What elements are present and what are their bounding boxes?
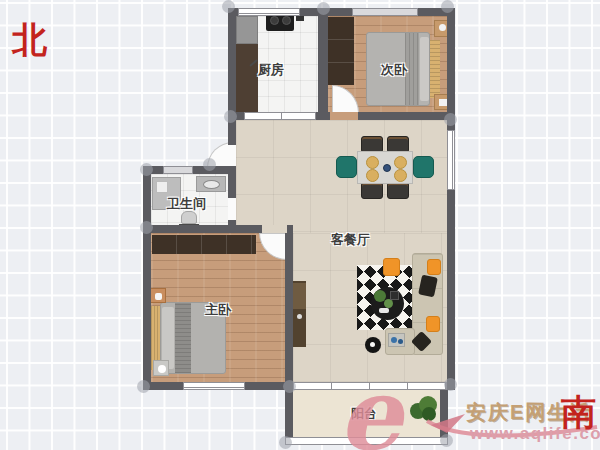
wall-left-upper <box>228 8 236 145</box>
doorway-second-bedroom <box>330 112 358 120</box>
room-label-master-bedroom: 主卧 <box>205 301 231 319</box>
watermark-logo: e <box>338 374 402 450</box>
corner-handle <box>140 221 153 234</box>
corner-handle <box>444 378 457 391</box>
floor-lamp <box>365 337 381 353</box>
book-icon <box>439 99 447 106</box>
plate-icon <box>394 156 407 169</box>
doorway-master <box>262 225 287 233</box>
corner-handle <box>224 110 237 123</box>
window-bedroom-top <box>352 8 418 16</box>
coffee-table <box>371 287 404 320</box>
tv-shelf <box>293 283 306 309</box>
dining-chair-teal <box>336 156 357 178</box>
sofa-pillow-orange <box>426 316 440 332</box>
room-label-living-dining: 客餐厅 <box>331 231 370 249</box>
wall-right <box>447 8 455 390</box>
wardrobe-master <box>152 235 256 254</box>
plant-icon <box>384 299 393 308</box>
plate-icon <box>366 156 379 169</box>
basin-icon <box>203 180 220 189</box>
plate-icon <box>366 169 379 182</box>
blanket <box>405 33 419 105</box>
compass-north: 北 <box>12 22 47 57</box>
sink <box>196 176 226 192</box>
corner-handle <box>203 158 216 171</box>
side-tray <box>388 333 405 347</box>
kitchen-counter-dark <box>236 44 258 112</box>
wall-master-right <box>285 225 293 390</box>
tray-icon <box>390 291 399 300</box>
window-living-right <box>447 130 455 190</box>
cup-icon <box>155 293 162 300</box>
lamp-icon <box>158 365 166 373</box>
wall-kitchen-divider <box>318 8 328 112</box>
window-kitchen-top <box>238 8 300 16</box>
corner-handle <box>317 2 330 15</box>
corner-handle <box>444 113 457 126</box>
dining-chair <box>387 182 409 199</box>
sofa-pillow-orange <box>427 259 441 275</box>
corner-handle <box>441 0 454 13</box>
corner-handle <box>137 380 150 393</box>
room-label-kitchen: 厨房 <box>258 61 284 79</box>
accent-chair <box>383 258 400 276</box>
corner-handle <box>222 0 235 13</box>
nightstand-master <box>153 360 169 376</box>
cup-icon <box>398 339 403 344</box>
burner-icon <box>282 16 291 25</box>
plate-icon <box>394 169 407 182</box>
window-master-bottom <box>183 382 245 390</box>
compass-south: 南 <box>561 394 596 429</box>
lamp-bulb-icon <box>370 342 375 347</box>
wardrobe <box>328 17 354 85</box>
lamp-icon <box>439 24 446 31</box>
shower-tray-icon <box>156 181 168 193</box>
entry-doorway <box>228 145 236 166</box>
headboard <box>430 40 440 98</box>
cup-icon <box>391 337 397 343</box>
corner-handle <box>283 380 296 393</box>
knob-icon <box>297 314 302 319</box>
room-label-second-bedroom: 次卧 <box>381 61 407 79</box>
kitchen-sliding-door <box>244 112 316 120</box>
corner-handle <box>140 163 153 176</box>
window-bathroom-top <box>163 166 193 174</box>
books-icon <box>379 308 389 313</box>
kitchen-counter-top <box>236 16 258 44</box>
doorway-bathroom <box>228 198 236 220</box>
blanket <box>175 303 191 373</box>
centerpiece-icon <box>383 164 391 172</box>
floorplan-page: { "compass": { "north_label": "北", "sout… <box>0 0 600 450</box>
tv-cabinet <box>293 281 306 347</box>
nightstand-master <box>149 288 166 303</box>
corner-handle <box>279 436 292 449</box>
wall-master-left <box>143 225 151 390</box>
dining-chair-teal <box>413 156 434 178</box>
burner-icon <box>270 16 279 25</box>
dining-chair <box>361 182 383 199</box>
pillow <box>420 37 429 101</box>
dining-table <box>357 151 413 184</box>
room-label-bathroom: 卫生间 <box>167 195 206 213</box>
